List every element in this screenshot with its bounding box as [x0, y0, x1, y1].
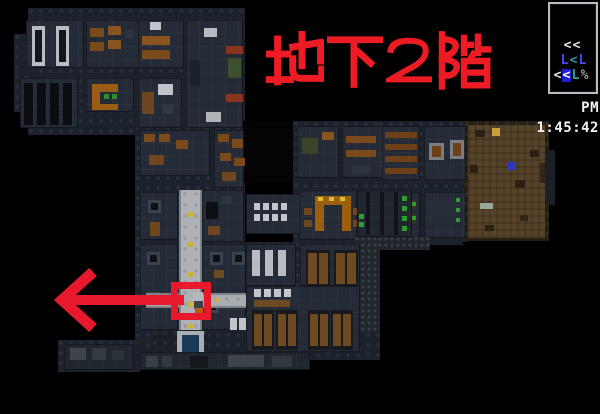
game-screenshot: 地下2階 <<L<L<<L% PM 1:45:42 — [0, 0, 600, 414]
map-region — [70, 348, 86, 360]
map-region — [470, 165, 478, 173]
map-region — [228, 58, 241, 78]
map-region — [208, 226, 220, 235]
map-region — [37, 83, 46, 125]
minimap-glyph: < — [562, 69, 571, 82]
map-region — [92, 348, 106, 360]
map-region — [150, 22, 161, 30]
map-region — [272, 203, 278, 210]
kanji-chi-icon — [266, 31, 324, 91]
floor-title: 地下2階 — [266, 30, 493, 92]
map-region — [222, 196, 232, 204]
map-region — [142, 92, 154, 114]
map-region — [112, 350, 124, 360]
map-region — [412, 216, 416, 220]
annotation-highlight-square — [171, 282, 211, 320]
clock-display: PM 1:45:42 — [510, 98, 600, 118]
map-region — [35, 30, 42, 62]
map-region — [315, 205, 324, 231]
map-region — [359, 222, 364, 227]
map-region — [545, 150, 555, 205]
map-region — [432, 146, 441, 157]
map-region — [343, 314, 351, 346]
map-region — [322, 132, 334, 140]
map-region — [142, 50, 170, 59]
minimap-row-3: <<L% — [553, 64, 589, 83]
map-region — [232, 139, 243, 148]
map-region — [213, 255, 220, 262]
map-region — [162, 356, 172, 367]
map-region — [492, 128, 500, 136]
map-region — [385, 132, 417, 138]
map-region — [428, 200, 458, 222]
map-region — [385, 156, 417, 162]
map-region — [190, 60, 200, 86]
map-region — [402, 196, 407, 201]
map-region — [252, 250, 260, 276]
map-region — [206, 112, 221, 122]
map-region — [318, 197, 323, 201]
map-region — [320, 314, 328, 346]
map-region — [385, 168, 417, 174]
minimap-glyph: < — [553, 69, 562, 82]
map-region — [281, 214, 287, 221]
map-region — [352, 166, 370, 174]
map-region — [59, 30, 66, 62]
map-region — [402, 216, 407, 221]
map-region — [308, 253, 317, 284]
map-region — [150, 255, 157, 262]
map-region — [142, 36, 170, 45]
map-region — [226, 46, 243, 54]
minimap-glyph: L — [571, 69, 580, 82]
map-region — [190, 356, 208, 368]
map-region — [104, 94, 109, 99]
map-region — [394, 192, 398, 235]
map-region — [215, 298, 219, 302]
map-region — [515, 180, 525, 188]
map-region — [162, 104, 174, 114]
map-region — [342, 205, 351, 231]
map-region — [264, 314, 272, 346]
map-region — [90, 28, 104, 37]
map-region — [24, 83, 33, 125]
map-region — [50, 83, 59, 125]
map-region — [108, 40, 121, 49]
map-region — [188, 242, 193, 247]
map-region — [150, 222, 160, 236]
map-region — [108, 26, 121, 35]
map-region — [176, 140, 188, 149]
map-region — [302, 138, 318, 154]
map-region — [380, 192, 384, 235]
map-region — [310, 314, 318, 346]
kanji-kai-icon — [435, 31, 493, 91]
map-region — [485, 225, 494, 231]
map-region — [90, 42, 104, 51]
map-region — [263, 203, 269, 210]
map-region — [304, 208, 312, 215]
map-region — [359, 214, 364, 219]
minimap-glyph: % — [580, 69, 589, 82]
map-region — [453, 143, 461, 156]
map-region — [146, 356, 158, 367]
map-region — [378, 237, 430, 250]
map-region — [385, 144, 417, 150]
map-region — [336, 253, 345, 284]
map-region — [412, 202, 416, 206]
map-region — [126, 30, 134, 38]
map-region — [63, 83, 72, 125]
map-region — [188, 212, 193, 217]
map-region — [346, 136, 376, 143]
kanji-shita-icon — [327, 31, 383, 91]
brown-floor-area — [468, 125, 545, 238]
annotation-arrow-left — [54, 264, 190, 336]
map-region — [204, 28, 217, 37]
map-region — [274, 289, 281, 297]
map-region — [254, 203, 260, 210]
map-region — [272, 214, 278, 221]
map-region — [230, 318, 237, 330]
unexplored-gap — [243, 121, 293, 183]
map-region — [284, 289, 291, 297]
map-region — [234, 158, 245, 166]
map-region — [456, 218, 460, 222]
map-region — [144, 134, 155, 142]
map-region — [340, 197, 345, 201]
map-region — [112, 94, 117, 99]
map-region — [92, 84, 118, 92]
map-region — [281, 203, 287, 210]
map-region — [530, 150, 539, 157]
map-region — [520, 215, 528, 221]
map-region — [220, 153, 231, 161]
map-region — [304, 220, 312, 227]
map-region — [402, 226, 407, 231]
map-region — [254, 289, 261, 297]
map-region — [214, 270, 224, 278]
map-region — [254, 214, 260, 221]
map-region — [222, 172, 236, 181]
map-region — [92, 104, 118, 110]
minimap-panel: <<L<L<<L% — [548, 2, 598, 94]
map-region — [329, 197, 334, 201]
map-region — [278, 314, 286, 346]
map-region — [347, 253, 356, 284]
map-region — [456, 198, 460, 202]
map-region — [265, 250, 273, 276]
map-region — [475, 130, 485, 137]
map-region — [226, 94, 243, 102]
map-region — [149, 155, 164, 165]
map-region — [319, 253, 328, 284]
map-region — [254, 300, 290, 307]
map-region — [456, 208, 460, 212]
digit-2-icon — [386, 31, 432, 91]
map-region — [254, 314, 262, 346]
map-region — [366, 192, 370, 235]
map-region — [228, 355, 264, 367]
map-region — [480, 203, 493, 209]
map-region — [272, 356, 292, 367]
map-region — [235, 255, 242, 262]
map-region — [278, 250, 286, 276]
map-region — [263, 214, 269, 221]
map-region — [402, 206, 407, 211]
map-region — [288, 314, 296, 346]
map-region — [333, 314, 341, 346]
map-region — [158, 84, 173, 95]
map-region — [508, 162, 516, 170]
map-region — [159, 134, 170, 142]
map-region — [239, 318, 246, 330]
map-region — [218, 134, 229, 142]
map-region — [151, 203, 158, 210]
map-region — [206, 202, 218, 219]
map-region — [346, 150, 376, 157]
map-region — [264, 289, 271, 297]
